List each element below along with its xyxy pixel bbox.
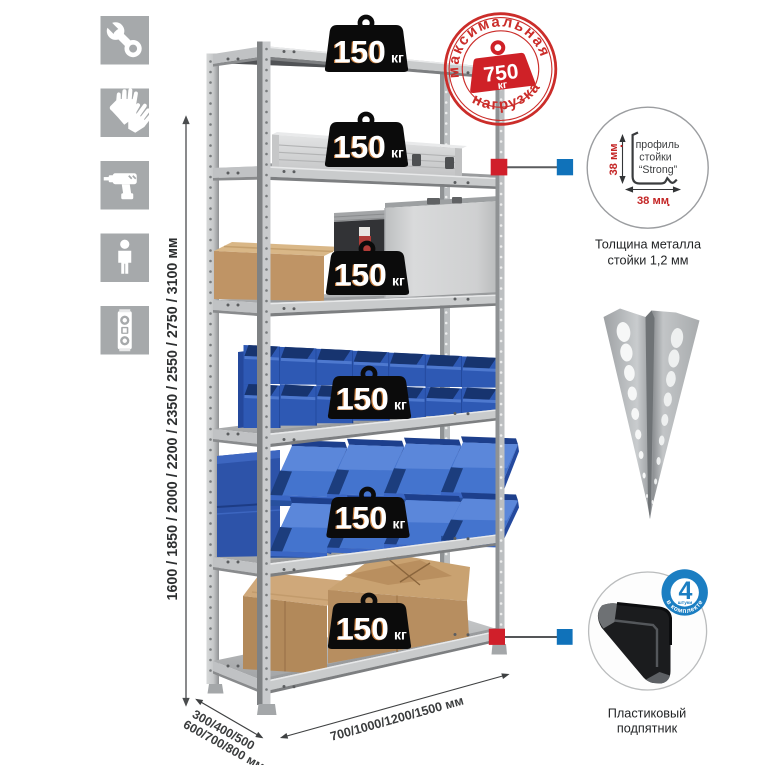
svg-text:подпятник: подпятник [617,722,678,736]
svg-text:стойки 1,2 мм: стойки 1,2 мм [608,254,689,268]
svg-text:кг: кг [391,145,404,161]
svg-text:кг: кг [392,273,405,289]
svg-text:“Strong”: “Strong” [639,164,678,176]
svg-text:1600 / 1850 / 2000 / 2200 / 23: 1600 / 1850 / 2000 / 2200 / 2350 / 2550 … [165,238,181,601]
svg-text:150: 150 [336,611,389,647]
svg-text:профиль: профиль [636,139,680,151]
svg-text:кг: кг [393,516,406,532]
svg-text:Пластиковый: Пластиковый [608,707,687,721]
svg-text:150: 150 [336,381,389,417]
svg-text:стойки: стойки [639,152,671,164]
svg-text:Толщина металла: Толщина металла [595,238,702,252]
svg-text:150: 150 [333,129,386,165]
svg-text:кг: кг [394,397,407,413]
svg-text:штуки: штуки [678,601,693,606]
svg-text:150: 150 [334,257,387,293]
svg-text:кг: кг [391,50,404,66]
svg-text:150: 150 [333,34,386,70]
svg-text:38 мм: 38 мм [637,195,669,207]
svg-text:кг: кг [394,627,407,643]
svg-text:150: 150 [335,500,388,536]
svg-text:38 мм: 38 мм [608,143,620,175]
